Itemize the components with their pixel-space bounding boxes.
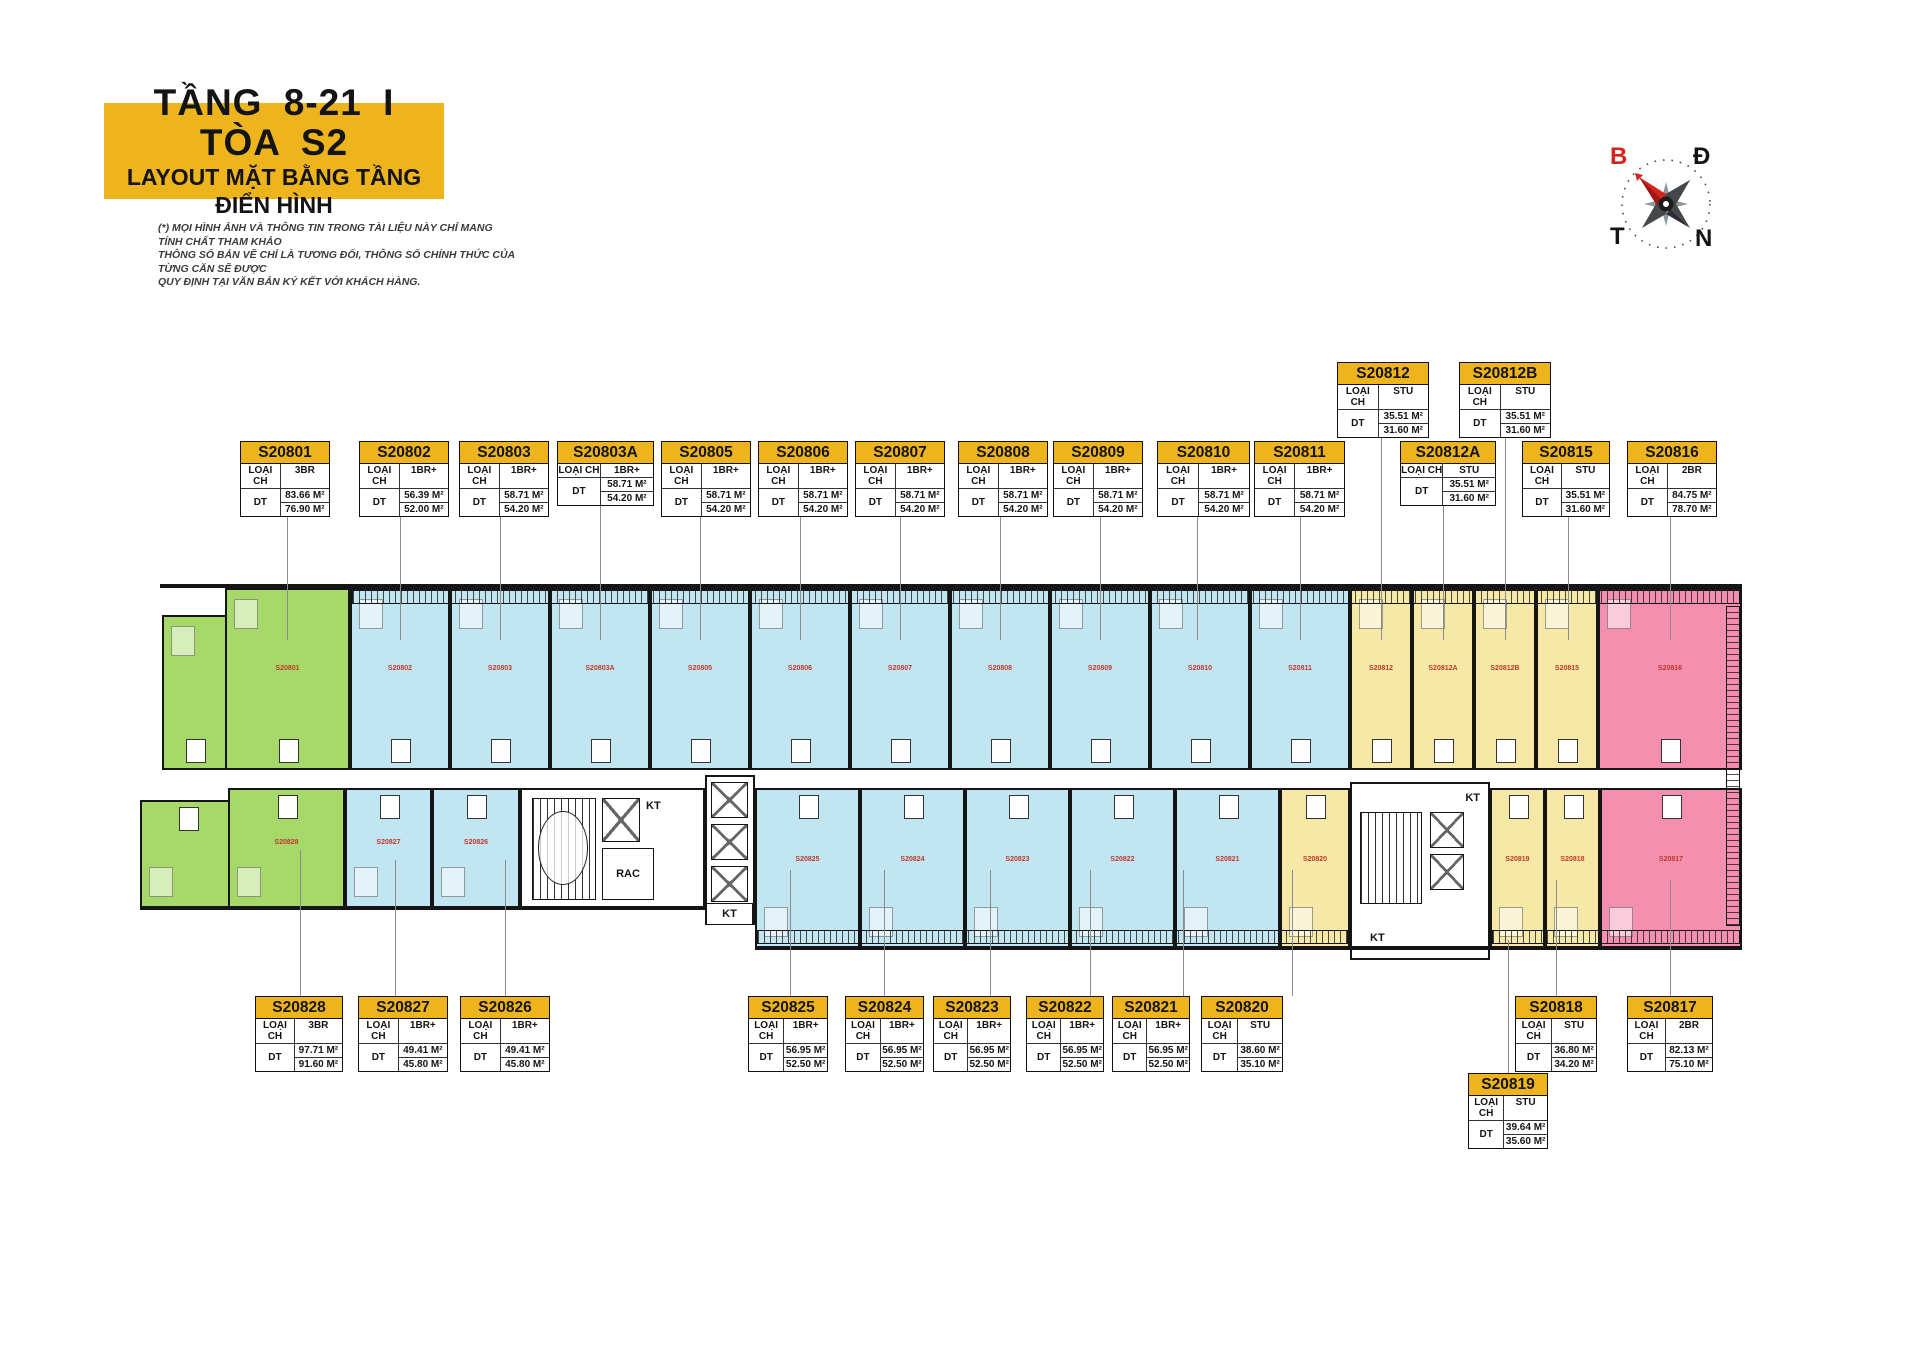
unit-area-gross: 49.41 M²: [398, 1044, 447, 1058]
unit-area-label: DT: [749, 1044, 783, 1071]
plan-unit-code: S20805: [652, 665, 748, 672]
plan-unit-code: S20816: [1600, 665, 1740, 672]
unit-area-net: 31.60 M²: [1500, 424, 1550, 437]
leader-line-S20823: [990, 870, 991, 996]
unit-area-net: 54.20 M²: [1198, 503, 1249, 516]
unit-callout-S20802[interactable]: S20802 LOẠI CH 1BR+ DT 56.39 M² 52.00 M²: [359, 441, 449, 517]
unit-area-gross: 58.71 M²: [600, 478, 653, 492]
plan-unit-code: S20812B: [1476, 665, 1534, 672]
unit-area-net: 52.50 M²: [967, 1058, 1010, 1071]
unit-type-value: 1BR+: [499, 464, 548, 489]
unit-type-value: 1BR+: [783, 1019, 827, 1044]
unit-area-net: 45.80 M²: [500, 1058, 549, 1071]
unit-type-value: STU: [1237, 1019, 1282, 1044]
plan-unit-code: S20811: [1252, 665, 1348, 672]
unit-callout-S20808[interactable]: S20808 LOẠI CH 1BR+ DT 58.71 M² 54.20 M²: [958, 441, 1048, 517]
unit-type-label: LOẠI CH: [1255, 464, 1294, 489]
plan-unit-code: S20810: [1152, 665, 1248, 672]
leader-line-S20802: [400, 503, 401, 640]
unit-specs: LOẠI CH 1BR+ DT 56.95 M² 52.50 M²: [1113, 1019, 1189, 1071]
leader-line-S20826: [505, 860, 506, 996]
page-title: TẦNG 8-21 I TÒA S2: [104, 83, 444, 163]
unit-code: S20803A: [558, 442, 653, 464]
unit-area-gross: 58.71 M²: [1198, 489, 1249, 503]
plan-unit-code: S20807: [852, 665, 948, 672]
unit-type-label: LOẠI CH: [241, 464, 280, 489]
leader-line-S20803A: [600, 503, 601, 640]
plan-unit-code: S20812A: [1414, 665, 1472, 672]
elevator-shaft: [1430, 854, 1464, 890]
leader-line-S20818: [1556, 880, 1557, 996]
unit-area-label: DT: [1523, 489, 1561, 516]
unit-specs: LOẠI CH 1BR+ DT 49.41 M² 45.80 M²: [461, 1019, 549, 1071]
leader-line-S20803: [500, 503, 501, 640]
plan-unit-code: S20815: [1538, 665, 1596, 672]
unit-code: S20812B: [1460, 363, 1550, 385]
unit-area-net: 54.20 M²: [1294, 503, 1344, 516]
unit-type-value: 1BR+: [880, 1019, 923, 1044]
unit-type-label: LOẠI CH: [1054, 464, 1093, 489]
plan-unit-code: S20828: [230, 839, 343, 846]
unit-type-label: LOẠI CH: [461, 1019, 500, 1044]
unit-callout-S20818[interactable]: S20818 LOẠI CH STU DT 36.80 M² 34.20 M²: [1515, 996, 1597, 1072]
unit-callout-S20807[interactable]: S20807 LOẠI CH 1BR+ DT 58.71 M² 54.20 M²: [855, 441, 945, 517]
balcony-hatch: [757, 930, 1348, 944]
leader-line-S20811: [1300, 503, 1301, 640]
unit-area-net: 54.20 M²: [1093, 503, 1142, 516]
unit-type-value: 1BR+: [701, 464, 750, 489]
unit-specs: LOẠI CH 1BR+ DT 58.71 M² 54.20 M²: [856, 464, 944, 516]
unit-type-value: 1BR+: [399, 464, 448, 489]
compass-east-label: Đ: [1693, 143, 1710, 171]
leader-line-S20809: [1100, 503, 1101, 640]
unit-area-gross: 36.80 M²: [1551, 1044, 1596, 1058]
unit-area-label: DT: [1027, 1044, 1060, 1071]
unit-type-label: LOẠI CH: [360, 464, 399, 489]
unit-area-label: DT: [1628, 1044, 1665, 1071]
unit-type-value: STU: [1442, 464, 1495, 478]
unit-type-label: LOẠI CH: [1158, 464, 1198, 489]
unit-area-gross: 56.95 M²: [1060, 1044, 1103, 1058]
unit-type-value: 2BR: [1665, 1019, 1712, 1044]
unit-area-gross: 38.60 M²: [1237, 1044, 1282, 1058]
unit-specs: LOẠI CH 1BR+ DT 58.71 M² 54.20 M²: [558, 464, 653, 505]
unit-area-net: 52.50 M²: [880, 1058, 923, 1071]
unit-specs: LOẠI CH 1BR+ DT 49.41 M² 45.80 M²: [359, 1019, 447, 1071]
unit-type-value: 1BR+: [998, 464, 1047, 489]
floorplan-poster: TẦNG 8-21 I TÒA S2 LAYOUT MẶT BẰNG TẦNG …: [0, 0, 1920, 1358]
leader-line-S20810: [1197, 503, 1198, 640]
disclaimer-line-3: QUY ĐỊNH TẠI VĂN BẢN KÝ KẾT VỚI KHÁCH HÀ…: [158, 276, 518, 290]
leader-line-S20801: [287, 503, 288, 640]
plan-unit-S20815[interactable]: S20815: [1536, 588, 1598, 770]
plan-unit-code: S20818: [1547, 856, 1598, 863]
unit-code: S20805: [662, 442, 750, 464]
leader-line-S20815: [1568, 503, 1569, 640]
lift-column: KT: [705, 775, 755, 925]
unit-area-net: 75.10 M²: [1665, 1058, 1712, 1071]
unit-type-label: LOẠI CH: [460, 464, 499, 489]
plan-unit-code: S20817: [1602, 856, 1740, 863]
unit-area-label: DT: [241, 489, 280, 516]
plan-unit-S20824[interactable]: S20824: [860, 788, 965, 948]
plan-unit-S20817[interactable]: S20817: [1600, 788, 1742, 948]
unit-area-net: 52.50 M²: [1060, 1058, 1103, 1071]
unit-code: S20827: [359, 997, 447, 1019]
unit-callout-S20827[interactable]: S20827 LOẠI CH 1BR+ DT 49.41 M² 45.80 M²: [358, 996, 448, 1072]
unit-area-label: DT: [846, 1044, 880, 1071]
unit-area-net: 34.20 M²: [1551, 1058, 1596, 1071]
unit-area-gross: 82.13 M²: [1665, 1044, 1712, 1058]
unit-area-label: DT: [1469, 1121, 1503, 1148]
unit-callout-S20812A[interactable]: S20812A LOẠI CH STU DT 35.51 M² 31.60 M²: [1400, 441, 1496, 506]
leader-line-S20817: [1670, 880, 1671, 996]
leader-line-S20807: [900, 503, 901, 640]
kt-label: KT: [722, 908, 737, 920]
unit-specs: LOẠI CH STU DT 38.60 M² 35.10 M²: [1202, 1019, 1282, 1071]
page-subtitle: LAYOUT MẶT BẰNG TẦNG ĐIỂN HÌNH: [104, 163, 444, 219]
unit-code: S20822: [1027, 997, 1103, 1019]
unit-code: S20810: [1158, 442, 1249, 464]
unit-area-net: 54.20 M²: [798, 503, 847, 516]
unit-area-gross: 56.95 M²: [783, 1044, 827, 1058]
unit-area-net: 54.20 M²: [499, 503, 548, 516]
unit-type-value: 3BR: [280, 464, 329, 489]
unit-code: S20826: [461, 997, 549, 1019]
unit-type-value: 1BR+: [967, 1019, 1010, 1044]
leader-line-S20828: [300, 850, 301, 996]
leader-line-S20812: [1381, 424, 1382, 640]
disclaimer-line-1: (*) MỌI HÌNH ẢNH VÀ THÔNG TIN TRONG TÀI …: [158, 222, 518, 249]
unit-callout-S20825[interactable]: S20825 LOẠI CH 1BR+ DT 56.95 M² 52.50 M²: [748, 996, 828, 1072]
unit-type-value: 1BR+: [1146, 1019, 1189, 1044]
unit-area-label: DT: [1113, 1044, 1146, 1071]
disclaimer-note: (*) MỌI HÌNH ẢNH VÀ THÔNG TIN TRONG TÀI …: [158, 222, 518, 290]
plan-unit-S20819[interactable]: S20819: [1490, 788, 1545, 948]
leader-line-S20822: [1090, 870, 1091, 996]
unit-area-net: 31.60 M²: [1378, 424, 1428, 437]
unit-area-label: DT: [460, 489, 499, 516]
unit-area-label: DT: [1202, 1044, 1237, 1071]
unit-type-label: LOẠI CH: [256, 1019, 294, 1044]
unit-specs: LOẠI CH STU DT 35.51 M² 31.60 M²: [1523, 464, 1609, 516]
unit-type-label: LOẠI CH: [1202, 1019, 1237, 1044]
leader-line-S20824: [884, 870, 885, 996]
leader-line-S20825: [790, 870, 791, 996]
unit-callout-S20823[interactable]: S20823 LOẠI CH 1BR+ DT 56.95 M² 52.50 M²: [933, 996, 1011, 1072]
unit-area-label: DT: [959, 489, 998, 516]
unit-area-gross: 58.71 M²: [499, 489, 548, 503]
plan-unit-code: S20821: [1177, 856, 1278, 863]
leader-line-S20812B: [1505, 424, 1506, 640]
unit-area-gross: 58.71 M²: [1093, 489, 1142, 503]
unit-callout-S20826[interactable]: S20826 LOẠI CH 1BR+ DT 49.41 M² 45.80 M²: [460, 996, 550, 1072]
unit-specs: LOẠI CH 1BR+ DT 58.71 M² 54.20 M²: [662, 464, 750, 516]
leader-line-S20821: [1183, 870, 1184, 996]
unit-type-label: LOẠI CH: [1469, 1096, 1503, 1121]
unit-type-label: LOẠI CH: [1113, 1019, 1146, 1044]
unit-area-net: 31.60 M²: [1442, 492, 1495, 505]
unit-specs: LOẠI CH 1BR+ DT 58.71 M² 54.20 M²: [1054, 464, 1142, 516]
unit-area-net: 54.20 M²: [895, 503, 944, 516]
unit-type-value: STU: [1378, 385, 1428, 410]
unit-type-value: STU: [1561, 464, 1609, 489]
unit-code: S20809: [1054, 442, 1142, 464]
unit-code: S20824: [846, 997, 923, 1019]
plan-unit-S20820[interactable]: S20820: [1280, 788, 1350, 948]
plan-unit-code: S20803A: [552, 665, 648, 672]
unit-area-net: 52.50 M²: [783, 1058, 827, 1071]
compass-rose-icon: B Đ T N: [1593, 125, 1743, 285]
title-block: TẦNG 8-21 I TÒA S2 LAYOUT MẶT BẰNG TẦNG …: [104, 103, 444, 199]
unit-area-gross: 58.71 M²: [998, 489, 1047, 503]
plan-unit-S20827[interactable]: S20827: [345, 788, 432, 908]
unit-area-net: 45.80 M²: [398, 1058, 447, 1071]
plan-unit-code: S20820: [1282, 856, 1348, 863]
unit-type-label: LOẠI CH: [1027, 1019, 1060, 1044]
unit-area-gross: 35.51 M²: [1500, 410, 1550, 424]
unit-area-net: 78.70 M²: [1667, 503, 1716, 516]
unit-area-net: 52.00 M²: [399, 503, 448, 516]
unit-area-gross: 58.71 M²: [895, 489, 944, 503]
unit-area-gross: 56.95 M²: [880, 1044, 923, 1058]
unit-callout-S20803A[interactable]: S20803A LOẠI CH 1BR+ DT 58.71 M² 54.20 M…: [557, 441, 654, 506]
unit-specs: LOẠI CH STU DT 35.51 M² 31.60 M²: [1460, 385, 1550, 437]
unit-code: S20818: [1516, 997, 1596, 1019]
unit-area-label: DT: [1628, 489, 1667, 516]
unit-area-net: 35.60 M²: [1503, 1135, 1547, 1148]
unit-area-label: DT: [1255, 489, 1294, 516]
unit-type-value: 1BR+: [895, 464, 944, 489]
unit-area-net: 31.60 M²: [1561, 503, 1609, 516]
unit-code: S20821: [1113, 997, 1189, 1019]
trash-room: RAC: [602, 848, 654, 900]
unit-callout-S20816[interactable]: S20816 LOẠI CH 2BR DT 84.75 M² 78.70 M²: [1627, 441, 1717, 517]
service-core-right: KT KT: [1350, 782, 1490, 960]
unit-callout-S20817[interactable]: S20817 LOẠI CH 2BR DT 82.13 M² 75.10 M²: [1627, 996, 1713, 1072]
unit-code: S20819: [1469, 1074, 1547, 1096]
plan-unit-S20810[interactable]: S20810: [1150, 588, 1250, 770]
unit-area-net: 91.60 M²: [294, 1058, 342, 1071]
unit-area-gross: 84.75 M²: [1667, 489, 1716, 503]
unit-callout-S20819[interactable]: S20819 LOẠI CH STU DT 39.64 M² 35.60 M²: [1468, 1073, 1548, 1149]
unit-area-gross: 58.71 M²: [1294, 489, 1344, 503]
unit-callout-S20803[interactable]: S20803 LOẠI CH 1BR+ DT 58.71 M² 54.20 M²: [459, 441, 549, 517]
unit-area-label: DT: [1460, 410, 1500, 437]
kt-label: KT: [1370, 932, 1385, 944]
plan-wall: [140, 906, 705, 910]
leader-line-S20805: [700, 503, 701, 640]
unit-type-value: STU: [1551, 1019, 1596, 1044]
leader-line-S20827: [395, 860, 396, 996]
unit-callout-S20806[interactable]: S20806 LOẠI CH 1BR+ DT 58.71 M² 54.20 M²: [758, 441, 848, 517]
unit-area-net: 54.20 M²: [998, 503, 1047, 516]
kt-label: KT: [646, 800, 661, 812]
elevator-shaft: [711, 824, 748, 860]
unit-code: S20825: [749, 997, 827, 1019]
plan-unit-S20825[interactable]: S20825: [755, 788, 860, 948]
unit-code: S20808: [959, 442, 1047, 464]
unit-area-label: DT: [856, 489, 895, 516]
unit-type-label: LOẠI CH: [1628, 1019, 1665, 1044]
unit-type-label: LOẠI CH: [1401, 464, 1442, 478]
unit-type-value: 1BR+: [798, 464, 847, 489]
unit-area-net: 54.20 M²: [600, 492, 653, 505]
unit-callout-S20811[interactable]: S20811 LOẠI CH 1BR+ DT 58.71 M² 54.20 M²: [1254, 441, 1345, 517]
unit-area-gross: 35.51 M²: [1442, 478, 1495, 492]
unit-area-label: DT: [558, 478, 600, 505]
compass-south-label: N: [1695, 225, 1712, 253]
unit-type-value: STU: [1503, 1096, 1547, 1121]
plan-unit-code: S20809: [1052, 665, 1148, 672]
unit-area-gross: 56.95 M²: [967, 1044, 1010, 1058]
plan-wall: [755, 946, 1742, 950]
unit-area-label: DT: [1054, 489, 1093, 516]
plan-unit-S20826[interactable]: S20826: [432, 788, 520, 908]
unit-area-gross: 35.51 M²: [1378, 410, 1428, 424]
unit-type-label: LOẠI CH: [846, 1019, 880, 1044]
unit-area-label: DT: [461, 1044, 500, 1071]
unit-area-label: DT: [1516, 1044, 1551, 1071]
unit-type-value: 3BR: [294, 1019, 342, 1044]
unit-type-label: LOẠI CH: [1516, 1019, 1551, 1044]
plan-unit-S20818[interactable]: S20818: [1545, 788, 1600, 948]
plan-unit-S20823[interactable]: S20823: [965, 788, 1070, 948]
unit-area-label: DT: [360, 489, 399, 516]
plan-unit-code: S20812: [1352, 665, 1410, 672]
unit-type-label: LOẠI CH: [856, 464, 895, 489]
plan-unit-code: S20803: [452, 665, 548, 672]
unit-callout-S20812[interactable]: S20812 LOẠI CH STU DT 35.51 M² 31.60 M²: [1337, 362, 1429, 438]
unit-callout-S20809[interactable]: S20809 LOẠI CH 1BR+ DT 58.71 M² 54.20 M²: [1053, 441, 1143, 517]
unit-code: S20820: [1202, 997, 1282, 1019]
unit-callout-S20821[interactable]: S20821 LOẠI CH 1BR+ DT 56.95 M² 52.50 M²: [1112, 996, 1190, 1072]
unit-type-value: 1BR+: [1093, 464, 1142, 489]
trash-room-label: RAC: [616, 868, 640, 880]
plan-unit-S20828[interactable]: S20828: [228, 788, 345, 908]
unit-area-label: DT: [662, 489, 701, 516]
unit-type-label: LOẠI CH: [1460, 385, 1500, 410]
compass-north-label: B: [1610, 143, 1627, 171]
unit-type-label: LOẠI CH: [1338, 385, 1378, 410]
unit-callout-S20820[interactable]: S20820 LOẠI CH STU DT 38.60 M² 35.10 M²: [1201, 996, 1283, 1072]
unit-code: S20817: [1628, 997, 1712, 1019]
unit-area-gross: 83.66 M²: [280, 489, 329, 503]
unit-code: S20811: [1255, 442, 1344, 464]
leader-line-S20812A: [1443, 503, 1444, 640]
unit-specs: LOẠI CH 3BR DT 97.71 M² 91.60 M²: [256, 1019, 342, 1071]
unit-callout-S20828[interactable]: S20828 LOẠI CH 3BR DT 97.71 M² 91.60 M²: [255, 996, 343, 1072]
unit-specs: LOẠI CH 1BR+ DT 56.95 M² 52.50 M²: [934, 1019, 1010, 1071]
unit-code: S20815: [1523, 442, 1609, 464]
unit-specs: LOẠI CH 1BR+ DT 58.71 M² 54.20 M²: [1255, 464, 1344, 516]
unit-area-gross: 56.39 M²: [399, 489, 448, 503]
unit-code: S20816: [1628, 442, 1716, 464]
plan-unit-code: S20824: [862, 856, 963, 863]
unit-callout-S20824[interactable]: S20824 LOẠI CH 1BR+ DT 56.95 M² 52.50 M²: [845, 996, 924, 1072]
balcony-hatch: [352, 590, 1740, 604]
plan-unit-code: S20825: [757, 856, 858, 863]
compass-west-label: T: [1610, 223, 1625, 251]
unit-area-label: DT: [1158, 489, 1198, 516]
unit-type-label: LOẠI CH: [662, 464, 701, 489]
plan-unit-code: S20822: [1072, 856, 1173, 863]
unit-code: S20801: [241, 442, 329, 464]
kt-label: KT: [1465, 792, 1480, 804]
unit-callout-S20815[interactable]: S20815 LOẠI CH STU DT 35.51 M² 31.60 M²: [1522, 441, 1610, 517]
unit-callout-S20805[interactable]: S20805 LOẠI CH 1BR+ DT 58.71 M² 54.20 M²: [661, 441, 751, 517]
unit-area-label: DT: [934, 1044, 967, 1071]
stair-oval: [538, 811, 588, 885]
unit-area-gross: 39.64 M²: [1503, 1121, 1547, 1135]
unit-specs: LOẠI CH STU DT 35.51 M² 31.60 M²: [1338, 385, 1428, 437]
unit-type-label: LOẠI CH: [934, 1019, 967, 1044]
plan-unit-code: S20806: [752, 665, 848, 672]
unit-area-gross: 58.71 M²: [701, 489, 750, 503]
unit-area-label: DT: [759, 489, 798, 516]
unit-code: S20802: [360, 442, 448, 464]
unit-area-net: 76.90 M²: [280, 503, 329, 516]
unit-specs: LOẠI CH 1BR+ DT 56.95 M² 52.50 M²: [846, 1019, 923, 1071]
unit-type-label: LOẠI CH: [959, 464, 998, 489]
plan-unit-S20801[interactable]: [162, 615, 228, 770]
plan-unit-code: S20823: [967, 856, 1068, 863]
unit-area-gross: 58.71 M²: [798, 489, 847, 503]
unit-type-value: 1BR+: [398, 1019, 447, 1044]
plan-unit-S20828[interactable]: [140, 800, 235, 908]
unit-callout-S20810[interactable]: S20810 LOẠI CH 1BR+ DT 58.71 M² 54.20 M²: [1157, 441, 1250, 517]
plan-unit-code: S20801: [227, 665, 348, 672]
unit-area-net: 52.50 M²: [1146, 1058, 1189, 1071]
plan-unit-code: S20827: [347, 839, 430, 846]
unit-code: S20812A: [1401, 442, 1495, 464]
plan-unit-code: S20808: [952, 665, 1048, 672]
unit-code: S20803: [460, 442, 548, 464]
unit-specs: LOẠI CH 1BR+ DT 56.95 M² 52.50 M²: [749, 1019, 827, 1071]
unit-code: S20807: [856, 442, 944, 464]
leader-line-S20816: [1670, 503, 1671, 640]
unit-type-value: STU: [1500, 385, 1550, 410]
unit-specs: LOẠI CH 1BR+ DT 58.71 M² 54.20 M²: [460, 464, 548, 516]
unit-area-net: 35.10 M²: [1237, 1058, 1282, 1071]
unit-specs: LOẠI CH STU DT 36.80 M² 34.20 M²: [1516, 1019, 1596, 1071]
unit-callout-S20812B[interactable]: S20812B LOẠI CH STU DT 35.51 M² 31.60 M²: [1459, 362, 1551, 438]
plan-unit-S20821[interactable]: S20821: [1175, 788, 1280, 948]
plan-unit-S20822[interactable]: S20822: [1070, 788, 1175, 948]
unit-callout-S20822[interactable]: S20822 LOẠI CH 1BR+ DT 56.95 M² 52.50 M²: [1026, 996, 1104, 1072]
unit-area-gross: 49.41 M²: [500, 1044, 549, 1058]
service-core-left: KT RAC: [520, 788, 705, 908]
unit-type-label: LOẠI CH: [1523, 464, 1561, 489]
unit-specs: LOẠI CH STU DT 39.64 M² 35.60 M²: [1469, 1096, 1547, 1148]
plan-unit-code: S20826: [434, 839, 518, 846]
unit-specs: LOẠI CH 1BR+ DT 58.71 M² 54.20 M²: [1158, 464, 1249, 516]
plan-unit-code: S20819: [1492, 856, 1543, 863]
unit-type-label: LOẠI CH: [749, 1019, 783, 1044]
unit-callout-S20801[interactable]: S20801 LOẠI CH 3BR DT 83.66 M² 76.90 M²: [240, 441, 330, 517]
unit-area-gross: 56.95 M²: [1146, 1044, 1189, 1058]
leader-line-S20820: [1292, 870, 1293, 996]
unit-type-value: 1BR+: [500, 1019, 549, 1044]
leader-line-S20806: [800, 503, 801, 640]
unit-area-label: DT: [256, 1044, 294, 1071]
elevator-shaft: [602, 798, 640, 842]
disclaimer-line-2: THÔNG SỐ BẢN VẼ CHỈ LÀ TƯƠNG ĐỐI, THÔNG …: [158, 249, 518, 276]
unit-type-label: LOẠI CH: [1628, 464, 1667, 489]
unit-specs: LOẠI CH 2BR DT 82.13 M² 75.10 M²: [1628, 1019, 1712, 1071]
unit-specs: LOẠI CH 1BR+ DT 56.95 M² 52.50 M²: [1027, 1019, 1103, 1071]
staircase: [1360, 812, 1422, 904]
